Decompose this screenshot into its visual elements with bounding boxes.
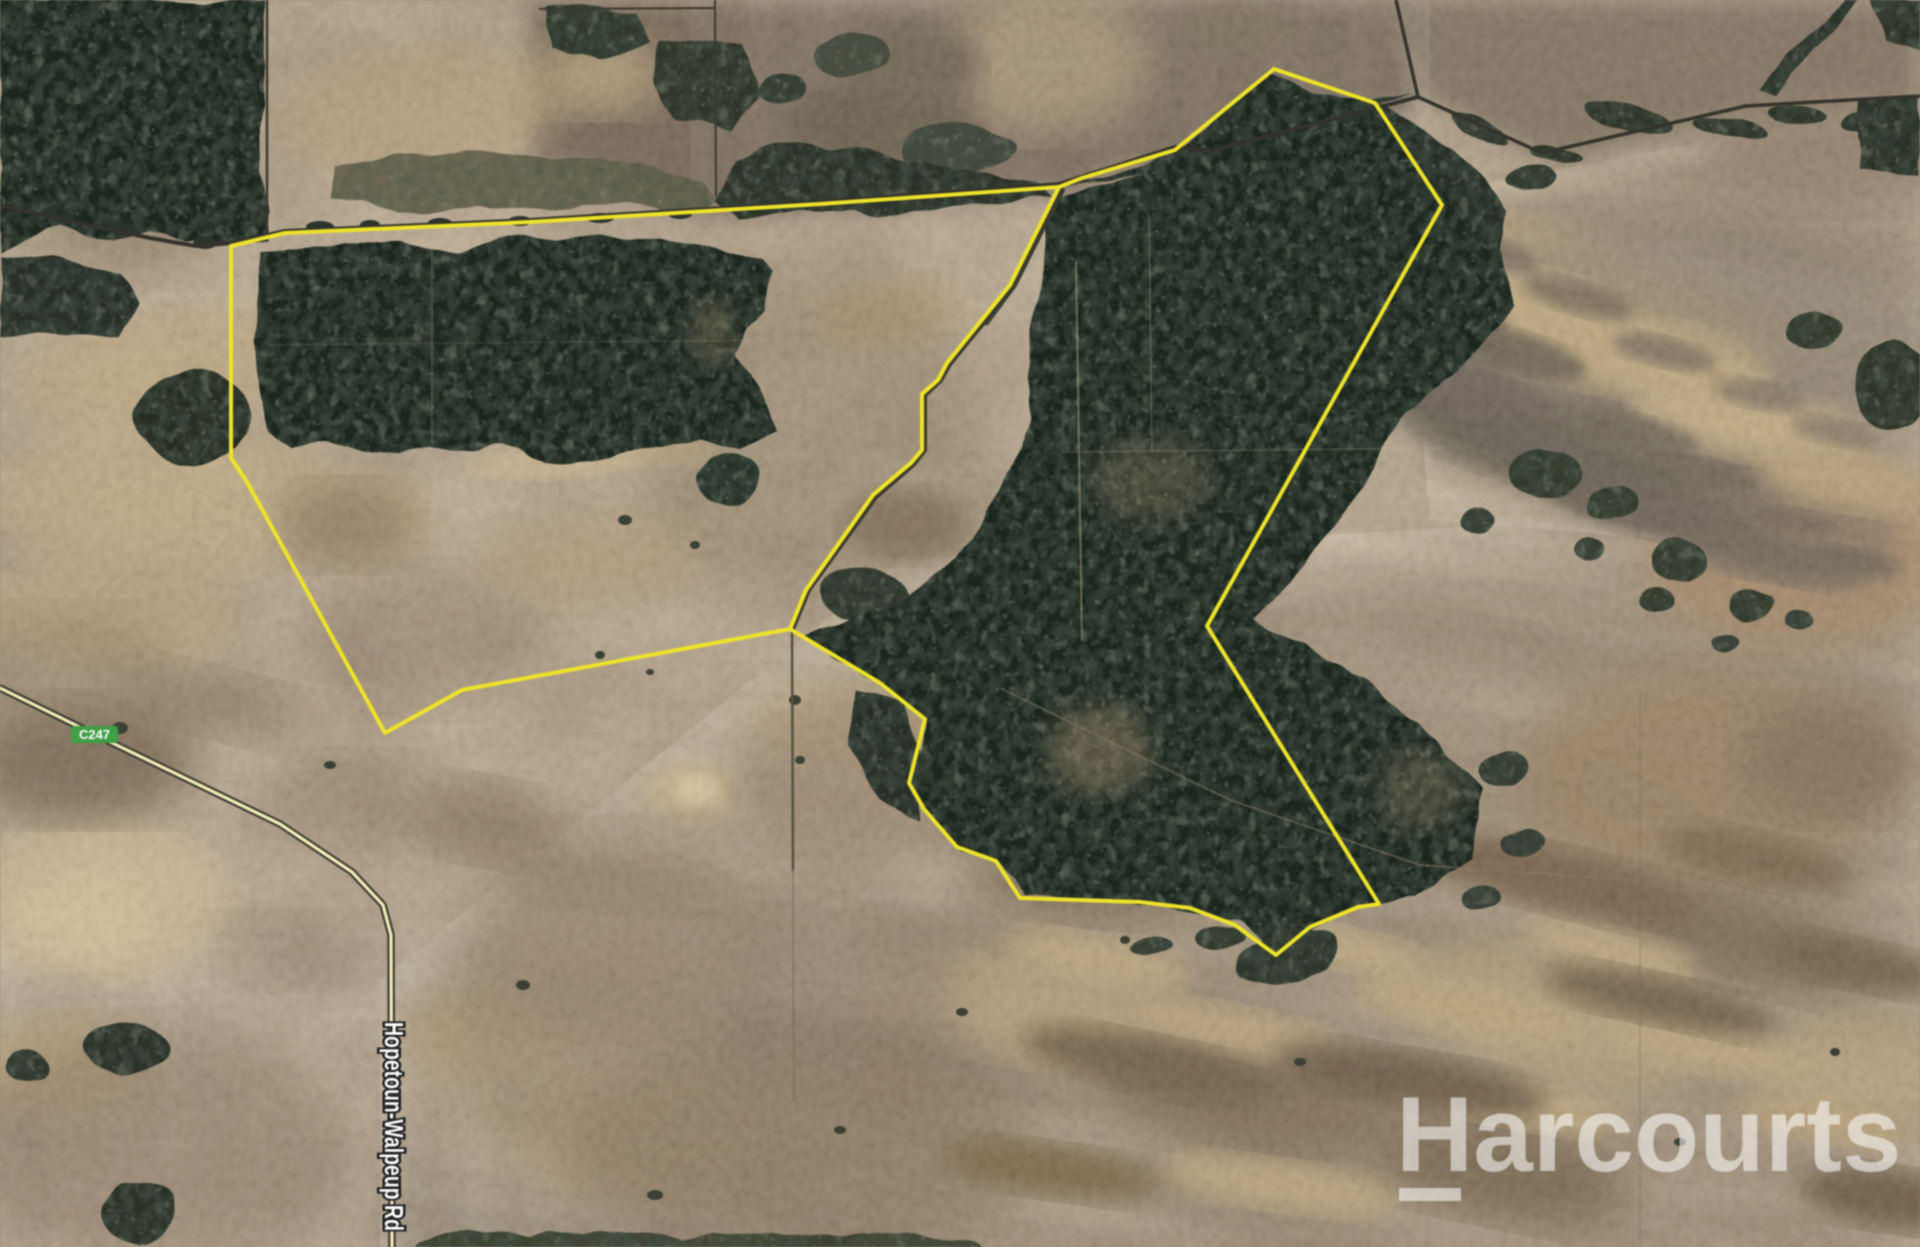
svg-text:C247: C247 — [79, 727, 110, 742]
svg-text:Harcourts: Harcourts — [1396, 1074, 1901, 1194]
svg-text:Hopetoun-Walpeup Rd: Hopetoun-Walpeup Rd — [379, 1022, 409, 1231]
